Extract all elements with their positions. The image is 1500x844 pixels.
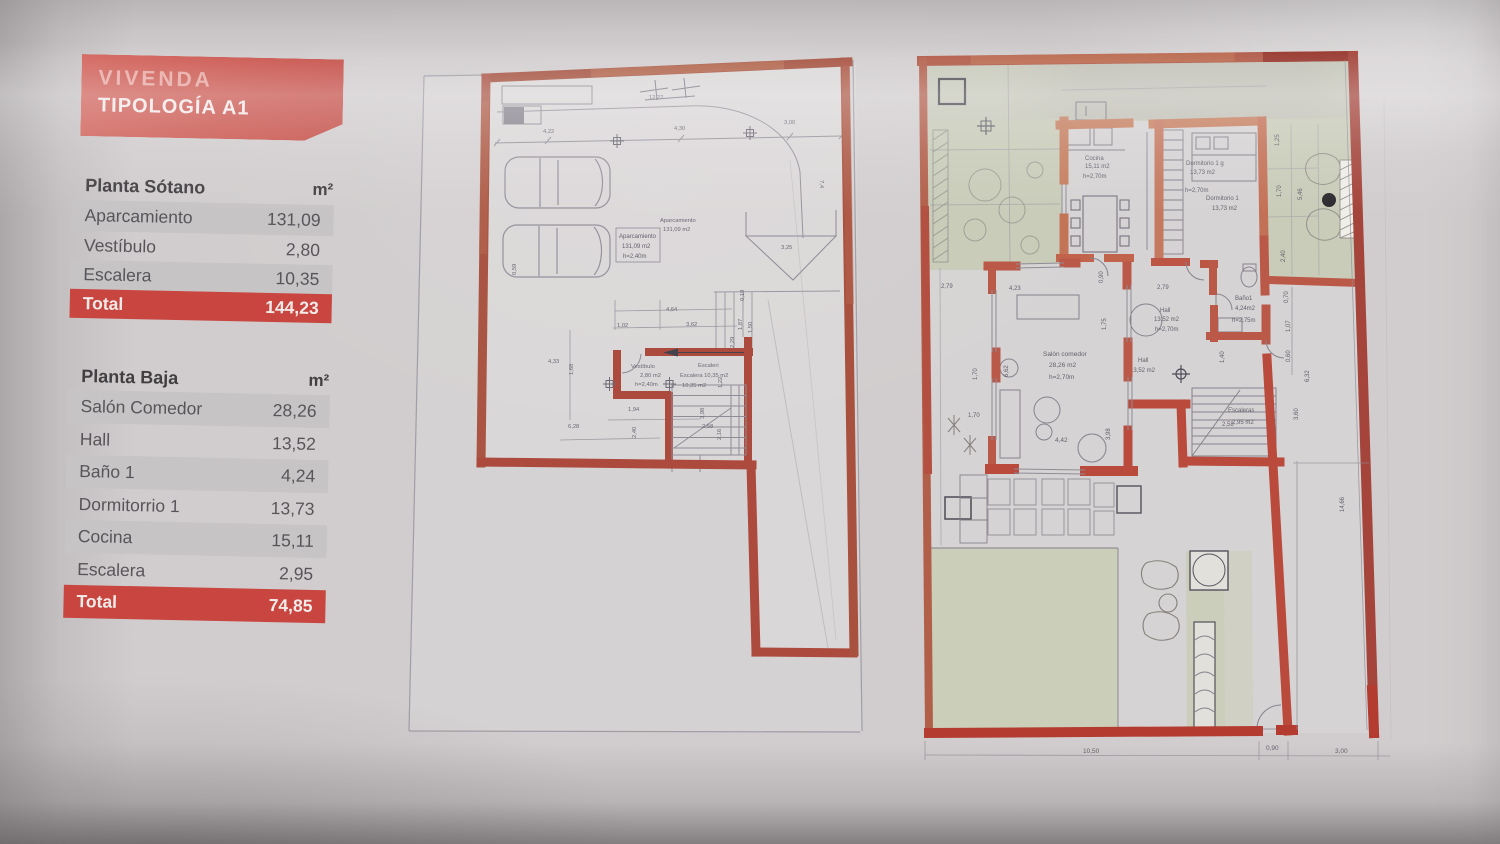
svg-text:7,4: 7,4 — [818, 180, 824, 189]
svg-text:1,70: 1,70 — [968, 413, 980, 419]
svg-text:0,90: 0,90 — [1266, 745, 1279, 752]
svg-text:28,26 m2: 28,26 m2 — [1049, 362, 1076, 369]
svg-text:Aparcamiento: Aparcamiento — [660, 218, 696, 224]
svg-text:3,00: 3,00 — [1335, 748, 1348, 755]
svg-text:Dormitorio 1 g: Dormitorio 1 g — [1186, 161, 1224, 167]
svg-text:h=2,70m: h=2,70m — [1049, 374, 1074, 381]
svg-text:0,59: 0,59 — [512, 264, 518, 275]
svg-text:2,29: 2,29 — [730, 337, 736, 348]
svg-text:1,07: 1,07 — [1286, 320, 1292, 332]
svg-text:0,90: 0,90 — [1099, 271, 1105, 283]
svg-text:10,35 m2: 10,35 m2 — [682, 383, 706, 389]
svg-text:1,40: 1,40 — [1220, 351, 1226, 363]
svg-text:2,58: 2,58 — [702, 424, 713, 430]
svg-text:Baño1: Baño1 — [1235, 296, 1253, 302]
svg-text:2,95 m2: 2,95 m2 — [1232, 420, 1254, 426]
svg-text:Hall: Hall — [1138, 358, 1148, 364]
svg-text:h=2,40m: h=2,40m — [623, 254, 647, 260]
svg-text:Cocina: Cocina — [1085, 156, 1104, 162]
svg-text:13,73 m2: 13,73 m2 — [1190, 170, 1216, 176]
svg-text:4,23: 4,23 — [1009, 286, 1021, 292]
svg-text:131,09 m2: 131,09 m2 — [622, 244, 651, 250]
svg-text:1,02: 1,02 — [617, 323, 628, 329]
svg-text:1,22: 1,22 — [718, 377, 724, 388]
svg-text:h=2,70m: h=2,70m — [1083, 174, 1107, 180]
svg-text:2,16: 2,16 — [717, 429, 723, 440]
svg-text:13,52 m2: 13,52 m2 — [1154, 317, 1180, 323]
svg-text:1,25: 1,25 — [1275, 134, 1281, 146]
svg-text:6,32: 6,32 — [1305, 370, 1311, 382]
svg-text:12,22: 12,22 — [649, 95, 664, 101]
svg-text:2,40: 2,40 — [632, 427, 638, 438]
svg-text:h=2,40m: h=2,40m — [635, 382, 658, 388]
svg-text:3,25: 3,25 — [781, 245, 792, 251]
svg-text:1,68: 1,68 — [569, 364, 575, 375]
svg-text:1,70: 1,70 — [973, 368, 979, 380]
svg-text:1,87: 1,87 — [738, 319, 744, 330]
svg-text:Vestíbulo: Vestíbulo — [631, 364, 655, 370]
svg-text:1,75: 1,75 — [1102, 318, 1108, 330]
svg-text:6,62: 6,62 — [1004, 365, 1010, 377]
svg-text:4,33: 4,33 — [548, 359, 559, 365]
svg-text:0,70: 0,70 — [1284, 291, 1290, 303]
svg-text:3,00: 3,00 — [784, 120, 795, 126]
svg-text:2,58: 2,58 — [1222, 422, 1234, 428]
svg-text:2,80 m2: 2,80 m2 — [640, 373, 661, 379]
svg-text:Aparcamiento: Aparcamiento — [619, 234, 657, 240]
svg-text:4,22: 4,22 — [543, 129, 554, 135]
svg-text:10,50: 10,50 — [1083, 748, 1100, 755]
svg-text:1,70: 1,70 — [1277, 185, 1283, 197]
svg-text:Dormitorio 1: Dormitorio 1 — [1206, 196, 1239, 202]
svg-text:131,09 m2: 131,09 m2 — [663, 227, 690, 233]
svg-text:0,60: 0,60 — [1286, 350, 1292, 362]
svg-text:Escaleras: Escaleras — [1228, 408, 1254, 414]
svg-text:2,79: 2,79 — [941, 284, 953, 290]
svg-text:5,46: 5,46 — [1298, 188, 1304, 200]
svg-text:3,62: 3,62 — [686, 322, 697, 328]
svg-text:3,60: 3,60 — [1294, 408, 1300, 420]
svg-text:13,73 m2: 13,73 m2 — [1212, 206, 1238, 212]
svg-text:4,24m2: 4,24m2 — [1235, 306, 1256, 312]
svg-text:3,98: 3,98 — [700, 408, 706, 419]
svg-text:h=2,70m: h=2,70m — [1155, 327, 1179, 333]
svg-text:h=2,75m: h=2,75m — [1232, 318, 1256, 324]
svg-text:0,19: 0,19 — [740, 290, 746, 301]
svg-text:13,52 m2: 13,52 m2 — [1130, 368, 1156, 374]
svg-text:2,79: 2,79 — [1157, 285, 1169, 291]
svg-text:1,94: 1,94 — [628, 407, 640, 413]
svg-text:Escaleri: Escaleri — [698, 363, 719, 369]
svg-text:4,64: 4,64 — [666, 307, 678, 313]
svg-text:2,40: 2,40 — [1281, 250, 1287, 262]
svg-text:4,30: 4,30 — [674, 126, 685, 132]
svg-text:14,66: 14,66 — [1340, 496, 1346, 512]
svg-text:3,98: 3,98 — [1106, 428, 1112, 440]
svg-text:h=2,70m: h=2,70m — [1185, 188, 1209, 194]
svg-text:15,11 m2: 15,11 m2 — [1085, 164, 1110, 170]
svg-text:Hall: Hall — [1160, 308, 1170, 314]
svg-text:6,28: 6,28 — [568, 424, 579, 430]
svg-text:Salón comedor: Salón comedor — [1043, 351, 1088, 358]
svg-text:4,42: 4,42 — [1055, 437, 1068, 444]
svg-text:1,50: 1,50 — [748, 322, 754, 333]
